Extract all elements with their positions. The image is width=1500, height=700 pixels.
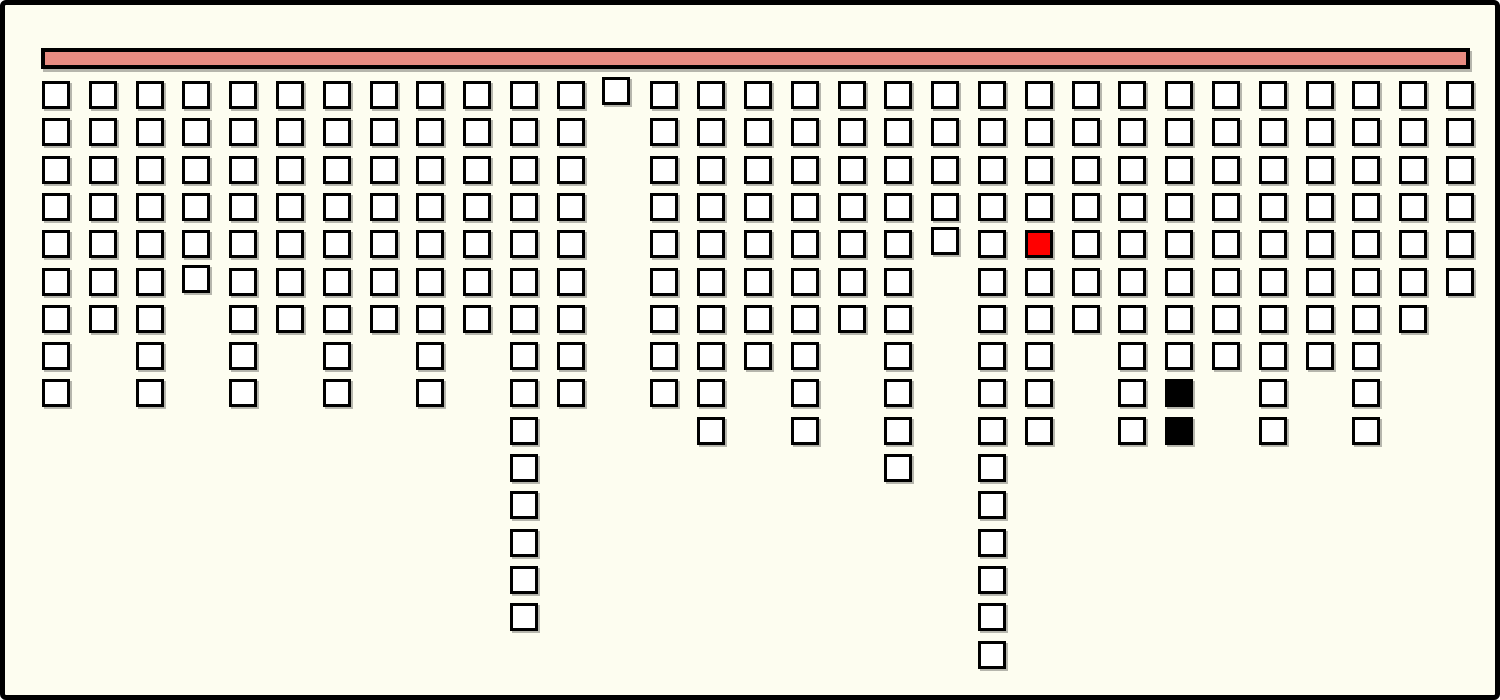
- block-cell[interactable]: [1072, 268, 1100, 296]
- block-cell[interactable]: [510, 342, 538, 370]
- block-cell[interactable]: [276, 268, 304, 296]
- block-cell[interactable]: [650, 268, 678, 296]
- block-cell[interactable]: [1072, 118, 1100, 146]
- block-grid: [5, 5, 1495, 695]
- block-cell[interactable]: [370, 193, 398, 221]
- block-cell[interactable]: [884, 417, 912, 445]
- block-cell[interactable]: [697, 230, 725, 258]
- block-cell[interactable]: [650, 342, 678, 370]
- block-cell[interactable]: [1118, 417, 1146, 445]
- block-cell[interactable]: [1025, 342, 1053, 370]
- block-cell[interactable]: [510, 193, 538, 221]
- block-cell[interactable]: [791, 379, 819, 407]
- block-cell[interactable]: [510, 156, 538, 184]
- block-cell[interactable]: [744, 268, 772, 296]
- block-cell[interactable]: [276, 118, 304, 146]
- block-cell[interactable]: [463, 268, 491, 296]
- block-cell[interactable]: [1072, 230, 1100, 258]
- block-cell[interactable]: [931, 81, 959, 109]
- block-cell[interactable]: [1165, 305, 1193, 333]
- block-cell[interactable]: [931, 227, 959, 255]
- block-cell[interactable]: [1306, 268, 1334, 296]
- block-cell[interactable]: [978, 193, 1006, 221]
- block-cell[interactable]: [650, 81, 678, 109]
- block-cell[interactable]: [697, 118, 725, 146]
- block-cell[interactable]: [1165, 81, 1193, 109]
- block-cell[interactable]: [136, 193, 164, 221]
- block-cell[interactable]: [978, 230, 1006, 258]
- block-cell[interactable]: [557, 342, 585, 370]
- block-cell[interactable]: [1352, 268, 1380, 296]
- block-cell[interactable]: [1259, 342, 1287, 370]
- block-cell[interactable]: [744, 342, 772, 370]
- block-cell[interactable]: [510, 454, 538, 482]
- block-cell[interactable]: [42, 230, 70, 258]
- block-cell[interactable]: [416, 156, 444, 184]
- block-cell[interactable]: [323, 230, 351, 258]
- block-cell[interactable]: [1025, 81, 1053, 109]
- block-cell[interactable]: [1259, 417, 1287, 445]
- block-cell[interactable]: [978, 118, 1006, 146]
- block-cell[interactable]: [1352, 417, 1380, 445]
- block-cell[interactable]: [650, 193, 678, 221]
- block-cell[interactable]: [1446, 118, 1474, 146]
- block-cell[interactable]: [1212, 230, 1240, 258]
- block-cell[interactable]: [136, 156, 164, 184]
- block-cell[interactable]: [1212, 118, 1240, 146]
- block-cell[interactable]: [1025, 268, 1053, 296]
- block-cell[interactable]: [791, 81, 819, 109]
- block-cell[interactable]: [276, 305, 304, 333]
- block-cell[interactable]: [744, 156, 772, 184]
- block-cell[interactable]: [182, 81, 210, 109]
- block-cell[interactable]: [416, 118, 444, 146]
- block-cell[interactable]: [557, 156, 585, 184]
- block-cell[interactable]: [182, 265, 210, 293]
- block-cell[interactable]: [884, 454, 912, 482]
- block-cell[interactable]: [89, 81, 117, 109]
- block-cell[interactable]: [697, 417, 725, 445]
- block-cell[interactable]: [136, 342, 164, 370]
- block-cell[interactable]: [1118, 193, 1146, 221]
- block-cell[interactable]: [931, 118, 959, 146]
- block-cell[interactable]: [229, 342, 257, 370]
- block-cell[interactable]: [838, 81, 866, 109]
- block-cell[interactable]: [510, 566, 538, 594]
- block-cell[interactable]: [557, 230, 585, 258]
- block-cell[interactable]: [323, 193, 351, 221]
- block-cell[interactable]: [323, 342, 351, 370]
- block-cell[interactable]: [416, 193, 444, 221]
- block-cell[interactable]: [1118, 230, 1146, 258]
- block-cell[interactable]: [276, 156, 304, 184]
- block-cell[interactable]: [323, 379, 351, 407]
- block-cell[interactable]: [370, 118, 398, 146]
- block-cell[interactable]: [463, 230, 491, 258]
- black-block-cell[interactable]: [1165, 417, 1193, 445]
- block-cell[interactable]: [416, 268, 444, 296]
- block-cell[interactable]: [1165, 118, 1193, 146]
- block-cell[interactable]: [463, 156, 491, 184]
- block-cell[interactable]: [1352, 118, 1380, 146]
- block-cell[interactable]: [1259, 81, 1287, 109]
- block-cell[interactable]: [978, 81, 1006, 109]
- block-cell[interactable]: [89, 268, 117, 296]
- block-cell[interactable]: [42, 156, 70, 184]
- block-cell[interactable]: [650, 379, 678, 407]
- block-cell[interactable]: [370, 230, 398, 258]
- block-cell[interactable]: [416, 230, 444, 258]
- block-cell[interactable]: [884, 193, 912, 221]
- block-cell[interactable]: [276, 81, 304, 109]
- block-cell[interactable]: [602, 77, 630, 105]
- block-cell[interactable]: [744, 230, 772, 258]
- block-cell[interactable]: [697, 379, 725, 407]
- block-cell[interactable]: [791, 118, 819, 146]
- block-cell[interactable]: [838, 305, 866, 333]
- block-cell[interactable]: [1212, 268, 1240, 296]
- block-cell[interactable]: [182, 156, 210, 184]
- block-cell[interactable]: [1118, 342, 1146, 370]
- block-cell[interactable]: [370, 268, 398, 296]
- block-cell[interactable]: [744, 305, 772, 333]
- block-cell[interactable]: [650, 230, 678, 258]
- block-cell[interactable]: [791, 268, 819, 296]
- block-cell[interactable]: [1259, 379, 1287, 407]
- block-cell[interactable]: [1212, 81, 1240, 109]
- block-cell[interactable]: [323, 156, 351, 184]
- block-cell[interactable]: [42, 305, 70, 333]
- block-cell[interactable]: [838, 230, 866, 258]
- block-cell[interactable]: [1212, 193, 1240, 221]
- block-cell[interactable]: [229, 118, 257, 146]
- block-cell[interactable]: [884, 342, 912, 370]
- block-cell[interactable]: [42, 118, 70, 146]
- block-cell[interactable]: [229, 230, 257, 258]
- block-cell[interactable]: [89, 230, 117, 258]
- block-cell[interactable]: [89, 118, 117, 146]
- block-cell[interactable]: [182, 118, 210, 146]
- block-cell[interactable]: [182, 193, 210, 221]
- block-cell[interactable]: [1118, 118, 1146, 146]
- block-cell[interactable]: [931, 193, 959, 221]
- block-cell[interactable]: [1118, 81, 1146, 109]
- block-cell[interactable]: [89, 156, 117, 184]
- block-cell[interactable]: [978, 268, 1006, 296]
- block-cell[interactable]: [1446, 268, 1474, 296]
- block-cell[interactable]: [229, 379, 257, 407]
- block-cell[interactable]: [978, 566, 1006, 594]
- block-cell[interactable]: [697, 305, 725, 333]
- block-cell[interactable]: [370, 305, 398, 333]
- block-cell[interactable]: [510, 305, 538, 333]
- block-cell[interactable]: [650, 305, 678, 333]
- block-cell[interactable]: [510, 268, 538, 296]
- block-cell[interactable]: [229, 305, 257, 333]
- block-cell[interactable]: [1259, 230, 1287, 258]
- block-cell[interactable]: [884, 268, 912, 296]
- block-cell[interactable]: [276, 230, 304, 258]
- block-cell[interactable]: [1165, 342, 1193, 370]
- block-cell[interactable]: [791, 342, 819, 370]
- block-cell[interactable]: [884, 230, 912, 258]
- block-cell[interactable]: [1446, 156, 1474, 184]
- block-cell[interactable]: [1399, 268, 1427, 296]
- block-cell[interactable]: [229, 193, 257, 221]
- block-cell[interactable]: [978, 491, 1006, 519]
- block-cell[interactable]: [1352, 379, 1380, 407]
- block-cell[interactable]: [1165, 268, 1193, 296]
- block-cell[interactable]: [510, 491, 538, 519]
- block-cell[interactable]: [1025, 379, 1053, 407]
- block-cell[interactable]: [744, 193, 772, 221]
- block-cell[interactable]: [1399, 230, 1427, 258]
- block-cell[interactable]: [1212, 156, 1240, 184]
- block-cell[interactable]: [791, 230, 819, 258]
- block-cell[interactable]: [1118, 305, 1146, 333]
- block-cell[interactable]: [1306, 118, 1334, 146]
- block-cell[interactable]: [42, 342, 70, 370]
- block-cell[interactable]: [510, 379, 538, 407]
- block-cell[interactable]: [1259, 305, 1287, 333]
- block-cell[interactable]: [136, 118, 164, 146]
- block-cell[interactable]: [42, 193, 70, 221]
- block-cell[interactable]: [1165, 156, 1193, 184]
- block-cell[interactable]: [510, 603, 538, 631]
- block-cell[interactable]: [1399, 193, 1427, 221]
- block-cell[interactable]: [1212, 342, 1240, 370]
- block-cell[interactable]: [697, 156, 725, 184]
- block-cell[interactable]: [838, 268, 866, 296]
- block-cell[interactable]: [1352, 193, 1380, 221]
- block-cell[interactable]: [1306, 81, 1334, 109]
- block-cell[interactable]: [510, 417, 538, 445]
- block-cell[interactable]: [370, 156, 398, 184]
- block-cell[interactable]: [978, 454, 1006, 482]
- block-cell[interactable]: [978, 417, 1006, 445]
- block-cell[interactable]: [791, 193, 819, 221]
- block-cell[interactable]: [697, 268, 725, 296]
- block-cell[interactable]: [89, 193, 117, 221]
- block-cell[interactable]: [1399, 305, 1427, 333]
- block-cell[interactable]: [1399, 156, 1427, 184]
- block-cell[interactable]: [557, 379, 585, 407]
- block-cell[interactable]: [323, 81, 351, 109]
- block-cell[interactable]: [1352, 342, 1380, 370]
- block-cell[interactable]: [510, 81, 538, 109]
- block-cell[interactable]: [838, 118, 866, 146]
- block-cell[interactable]: [1259, 193, 1287, 221]
- block-cell[interactable]: [42, 268, 70, 296]
- block-cell[interactable]: [557, 81, 585, 109]
- block-cell[interactable]: [884, 118, 912, 146]
- block-cell[interactable]: [1072, 81, 1100, 109]
- block-cell[interactable]: [884, 156, 912, 184]
- block-cell[interactable]: [1306, 193, 1334, 221]
- block-cell[interactable]: [1446, 81, 1474, 109]
- block-cell[interactable]: [931, 156, 959, 184]
- block-cell[interactable]: [697, 193, 725, 221]
- block-cell[interactable]: [838, 193, 866, 221]
- block-cell[interactable]: [463, 193, 491, 221]
- block-cell[interactable]: [416, 342, 444, 370]
- block-cell[interactable]: [229, 156, 257, 184]
- block-cell[interactable]: [463, 305, 491, 333]
- block-cell[interactable]: [136, 230, 164, 258]
- block-cell[interactable]: [1306, 230, 1334, 258]
- block-cell[interactable]: [1352, 156, 1380, 184]
- block-cell[interactable]: [463, 118, 491, 146]
- block-cell[interactable]: [978, 641, 1006, 669]
- block-cell[interactable]: [510, 118, 538, 146]
- block-cell[interactable]: [1352, 305, 1380, 333]
- block-cell[interactable]: [1259, 156, 1287, 184]
- block-cell[interactable]: [1025, 193, 1053, 221]
- block-cell[interactable]: [791, 156, 819, 184]
- black-block-cell[interactable]: [1165, 379, 1193, 407]
- block-cell[interactable]: [42, 81, 70, 109]
- block-cell[interactable]: [1118, 379, 1146, 407]
- block-cell[interactable]: [229, 268, 257, 296]
- block-cell[interactable]: [1072, 156, 1100, 184]
- block-cell[interactable]: [182, 230, 210, 258]
- block-cell[interactable]: [650, 156, 678, 184]
- block-cell[interactable]: [557, 193, 585, 221]
- block-cell[interactable]: [557, 268, 585, 296]
- block-cell[interactable]: [1399, 81, 1427, 109]
- block-cell[interactable]: [323, 118, 351, 146]
- block-cell[interactable]: [229, 81, 257, 109]
- block-cell[interactable]: [1259, 118, 1287, 146]
- block-cell[interactable]: [744, 118, 772, 146]
- block-cell[interactable]: [1306, 342, 1334, 370]
- block-cell[interactable]: [791, 305, 819, 333]
- block-cell[interactable]: [1165, 230, 1193, 258]
- block-cell[interactable]: [89, 305, 117, 333]
- block-cell[interactable]: [838, 156, 866, 184]
- block-cell[interactable]: [276, 193, 304, 221]
- block-cell[interactable]: [1025, 305, 1053, 333]
- block-cell[interactable]: [1306, 305, 1334, 333]
- block-cell[interactable]: [136, 81, 164, 109]
- block-cell[interactable]: [791, 417, 819, 445]
- block-cell[interactable]: [1306, 156, 1334, 184]
- block-cell[interactable]: [1165, 193, 1193, 221]
- block-cell[interactable]: [510, 529, 538, 557]
- block-cell[interactable]: [650, 118, 678, 146]
- block-cell[interactable]: [463, 81, 491, 109]
- block-cell[interactable]: [1025, 156, 1053, 184]
- block-cell[interactable]: [884, 305, 912, 333]
- block-cell[interactable]: [323, 268, 351, 296]
- block-cell[interactable]: [323, 305, 351, 333]
- block-cell[interactable]: [1118, 156, 1146, 184]
- block-cell[interactable]: [557, 118, 585, 146]
- block-cell[interactable]: [416, 305, 444, 333]
- block-cell[interactable]: [744, 81, 772, 109]
- block-cell[interactable]: [416, 81, 444, 109]
- block-cell[interactable]: [1025, 118, 1053, 146]
- red-block-cell[interactable]: [1025, 230, 1053, 258]
- block-cell[interactable]: [978, 529, 1006, 557]
- block-cell[interactable]: [1352, 230, 1380, 258]
- block-cell[interactable]: [136, 379, 164, 407]
- block-cell[interactable]: [1446, 193, 1474, 221]
- block-cell[interactable]: [1259, 268, 1287, 296]
- block-cell[interactable]: [42, 379, 70, 407]
- block-cell[interactable]: [884, 81, 912, 109]
- block-cell[interactable]: [136, 268, 164, 296]
- block-cell[interactable]: [136, 305, 164, 333]
- block-cell[interactable]: [978, 603, 1006, 631]
- block-cell[interactable]: [1212, 305, 1240, 333]
- block-cell[interactable]: [697, 342, 725, 370]
- board-frame: [0, 0, 1500, 700]
- block-cell[interactable]: [1352, 81, 1380, 109]
- block-cell[interactable]: [1072, 305, 1100, 333]
- block-cell[interactable]: [510, 230, 538, 258]
- block-cell[interactable]: [978, 342, 1006, 370]
- block-cell[interactable]: [1118, 268, 1146, 296]
- block-cell[interactable]: [1025, 417, 1053, 445]
- block-cell[interactable]: [978, 305, 1006, 333]
- block-cell[interactable]: [978, 379, 1006, 407]
- block-cell[interactable]: [697, 81, 725, 109]
- block-cell[interactable]: [978, 156, 1006, 184]
- block-cell[interactable]: [557, 305, 585, 333]
- block-cell[interactable]: [370, 81, 398, 109]
- block-cell[interactable]: [416, 379, 444, 407]
- block-cell[interactable]: [884, 379, 912, 407]
- block-cell[interactable]: [1399, 118, 1427, 146]
- block-cell[interactable]: [1072, 193, 1100, 221]
- block-cell[interactable]: [1446, 230, 1474, 258]
